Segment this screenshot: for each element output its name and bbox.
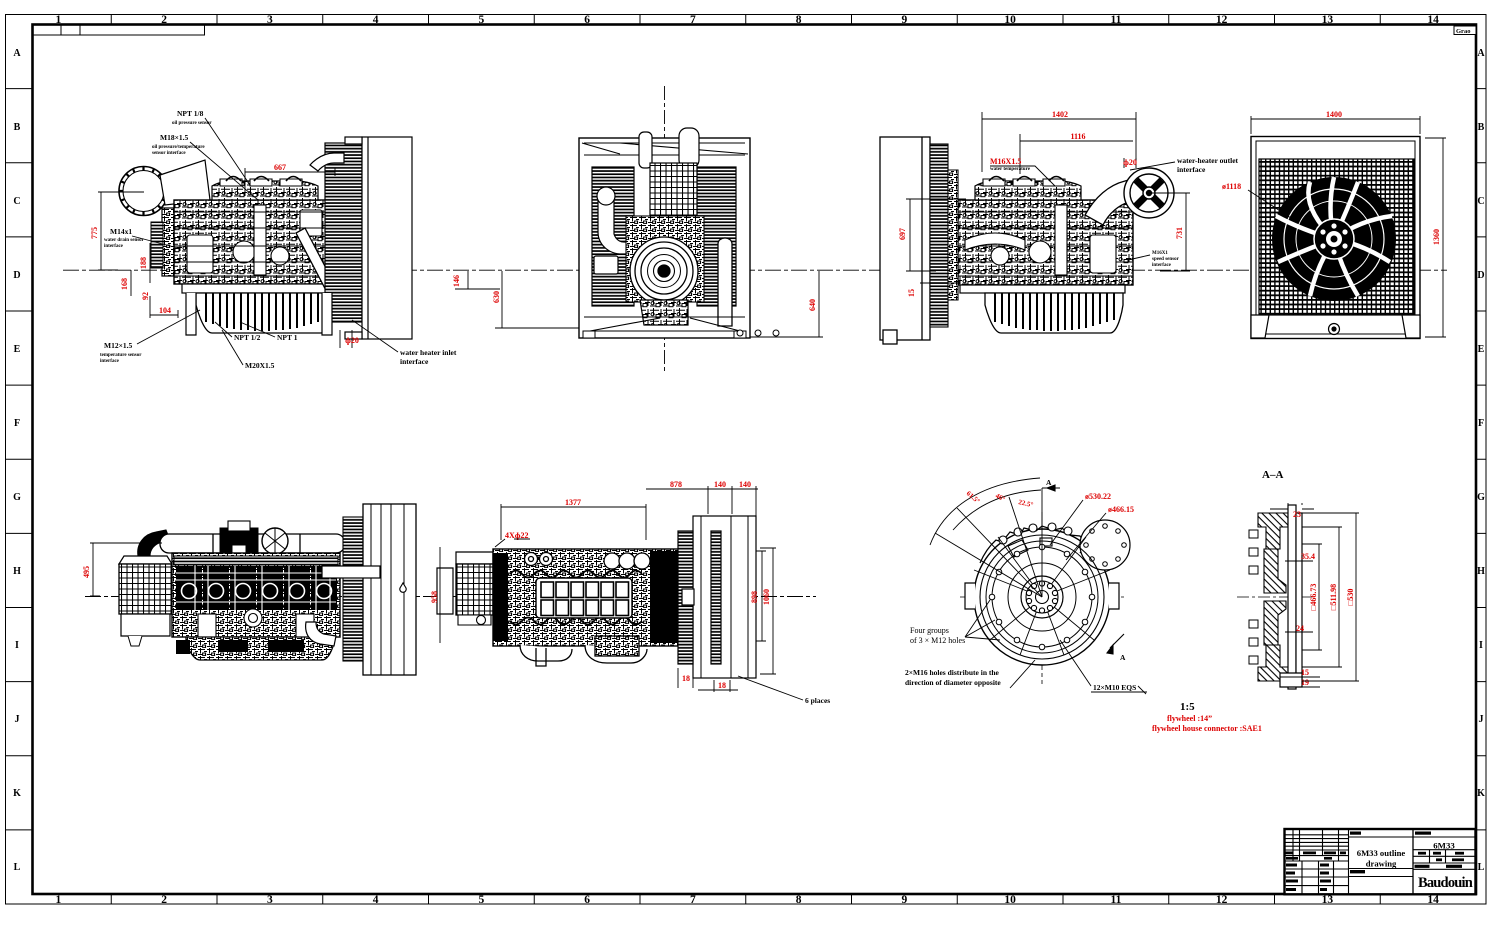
svg-text:G: G: [13, 492, 21, 503]
svg-text:temperature sensor: temperature sensor: [100, 353, 142, 358]
svg-text:6M33 outline: 6M33 outline: [1357, 848, 1406, 858]
svg-text:6M33: 6M33: [1433, 841, 1455, 851]
svg-text:1377: 1377: [565, 498, 581, 507]
svg-text:9: 9: [902, 14, 908, 26]
svg-text:7: 7: [690, 894, 696, 906]
svg-text:ɸ20: ɸ20: [1123, 158, 1137, 167]
svg-text:water temperature: water temperature: [990, 167, 1031, 172]
svg-text:731: 731: [1175, 227, 1184, 239]
svg-text:□511.98: □511.98: [1329, 584, 1338, 610]
svg-text:18: 18: [718, 681, 726, 690]
svg-text:11: 11: [1110, 14, 1121, 26]
svg-text:ɸ20: ɸ20: [345, 336, 359, 345]
svg-text:630: 630: [492, 291, 501, 303]
svg-text:□466.73: □466.73: [1309, 584, 1318, 611]
svg-text:1: 1: [56, 894, 62, 906]
svg-text:M18×1.5: M18×1.5: [160, 133, 188, 142]
svg-text:168: 168: [120, 278, 129, 290]
svg-text:10: 10: [1004, 14, 1016, 26]
svg-text:E: E: [1478, 344, 1485, 355]
svg-text:NPT 1: NPT 1: [277, 333, 298, 342]
svg-text:C: C: [13, 196, 20, 207]
svg-text:2×M16 holes distribute in the: 2×M16 holes distribute in the: [905, 668, 1000, 677]
svg-text:14: 14: [1427, 14, 1439, 26]
svg-text:A: A: [1477, 48, 1485, 59]
svg-text:13: 13: [1322, 894, 1334, 906]
svg-text:interface: interface: [1152, 263, 1172, 268]
svg-text:Four groups: Four groups: [910, 626, 949, 635]
svg-text:A: A: [1046, 478, 1052, 487]
svg-text:water drain sensor: water drain sensor: [104, 238, 145, 243]
svg-text:drawing: drawing: [1366, 859, 1397, 869]
svg-text:11: 11: [1110, 894, 1121, 906]
svg-text:6: 6: [584, 14, 590, 26]
svg-text:5: 5: [479, 14, 485, 26]
svg-text:NPT 1/2: NPT 1/2: [234, 333, 261, 342]
svg-text:775: 775: [90, 227, 99, 239]
svg-text:A–A: A–A: [1262, 469, 1283, 481]
svg-text:interface: interface: [1177, 165, 1206, 174]
svg-text:L: L: [1478, 862, 1485, 873]
svg-text:3: 3: [267, 14, 273, 26]
svg-text:640: 640: [808, 299, 817, 311]
svg-text:NPT 1/8: NPT 1/8: [177, 109, 204, 118]
svg-text:92: 92: [141, 292, 150, 300]
svg-text:I: I: [15, 640, 19, 651]
svg-text:13: 13: [1322, 14, 1334, 26]
svg-text:I: I: [1479, 640, 1483, 651]
svg-text:1360: 1360: [1432, 229, 1441, 245]
svg-text:1060: 1060: [762, 589, 771, 605]
svg-text:J: J: [1479, 714, 1484, 725]
svg-text:Baudouin: Baudouin: [1418, 875, 1473, 891]
svg-text:K: K: [13, 788, 21, 799]
svg-text:1400: 1400: [1326, 110, 1342, 119]
svg-text:6 places: 6 places: [805, 696, 830, 705]
svg-text:12×M10 EQS: 12×M10 EQS: [1093, 683, 1136, 692]
svg-text:D: D: [13, 270, 20, 281]
svg-text:8: 8: [796, 894, 802, 906]
svg-text:M12×1.5: M12×1.5: [104, 341, 132, 350]
svg-text:interface: interface: [400, 357, 429, 366]
svg-text:M16X1.5: M16X1.5: [990, 157, 1021, 166]
svg-text:H: H: [13, 566, 21, 577]
svg-text:J: J: [15, 714, 20, 725]
svg-text:5: 5: [479, 894, 485, 906]
svg-text:G: G: [1477, 492, 1485, 503]
svg-text:L: L: [14, 862, 21, 873]
svg-text:direction of diameter opposite: direction of diameter opposite: [905, 678, 1001, 687]
svg-text:B: B: [1478, 122, 1485, 133]
svg-text:Grao: Grao: [1456, 28, 1470, 35]
svg-text:4: 4: [373, 894, 379, 906]
svg-text:18: 18: [682, 674, 690, 683]
svg-text:23: 23: [1293, 510, 1301, 519]
svg-text:water heater inlet: water heater inlet: [400, 348, 457, 357]
svg-text:F: F: [1478, 418, 1484, 429]
svg-text:K: K: [1477, 788, 1485, 799]
svg-text:sensor interface: sensor interface: [152, 151, 186, 156]
svg-text:M20X1.5: M20X1.5: [245, 361, 275, 370]
svg-text:878: 878: [670, 480, 682, 489]
svg-text:14: 14: [1427, 894, 1439, 906]
svg-text:35.4: 35.4: [1301, 552, 1315, 561]
svg-text:ø530.22: ø530.22: [1085, 492, 1111, 501]
svg-text:ø1118: ø1118: [1222, 182, 1241, 191]
svg-text:2: 2: [161, 894, 167, 906]
svg-text:E: E: [14, 344, 21, 355]
svg-text:of 3 × M12 holes: of 3 × M12 holes: [910, 636, 965, 645]
svg-text:15: 15: [1301, 668, 1309, 677]
svg-text:1116: 1116: [1070, 132, 1085, 141]
svg-text:C: C: [1477, 196, 1484, 207]
svg-text:ø466.15: ø466.15: [1108, 505, 1134, 514]
svg-text:1:5: 1:5: [1180, 701, 1195, 713]
svg-text:12: 12: [1216, 14, 1228, 26]
svg-text:146: 146: [452, 275, 461, 287]
svg-text:flywheel :14”: flywheel :14”: [1167, 714, 1212, 723]
svg-text:495: 495: [82, 566, 91, 578]
svg-text:10: 10: [1004, 894, 1016, 906]
svg-text:speed sensor: speed sensor: [1152, 257, 1180, 262]
svg-text:140: 140: [739, 480, 751, 489]
svg-text:12: 12: [1216, 894, 1228, 906]
svg-text:188: 188: [139, 257, 148, 269]
svg-text:oil pressure sensor: oil pressure sensor: [172, 121, 212, 126]
svg-text:□530: □530: [1346, 589, 1355, 606]
svg-text:140: 140: [714, 480, 726, 489]
svg-text:3: 3: [267, 894, 273, 906]
svg-text:water-heater outlet: water-heater outlet: [1177, 156, 1239, 165]
svg-text:F: F: [14, 418, 20, 429]
svg-text:15: 15: [907, 289, 916, 297]
svg-text:1402: 1402: [1052, 110, 1068, 119]
svg-text:4: 4: [373, 14, 379, 26]
svg-text:24: 24: [1296, 624, 1304, 633]
svg-text:958: 958: [430, 591, 439, 603]
svg-text:697: 697: [898, 228, 907, 240]
svg-text:flywheel house connector :SAE1: flywheel house connector :SAE1: [1152, 724, 1262, 733]
svg-text:B: B: [14, 122, 21, 133]
svg-text:8: 8: [796, 14, 802, 26]
svg-text:D: D: [1477, 270, 1484, 281]
svg-text:898: 898: [750, 591, 759, 603]
svg-text:667: 667: [274, 163, 286, 172]
svg-text:M16X1: M16X1: [1152, 251, 1168, 256]
svg-text:interface: interface: [104, 244, 124, 249]
svg-text:interface: interface: [100, 359, 120, 364]
svg-text:6: 6: [584, 894, 590, 906]
svg-text:oil pressure/temperature: oil pressure/temperature: [152, 145, 205, 150]
svg-text:19: 19: [1301, 678, 1309, 687]
svg-text:A: A: [13, 48, 21, 59]
svg-text:H: H: [1477, 566, 1485, 577]
svg-text:7: 7: [690, 14, 696, 26]
svg-text:A: A: [1120, 653, 1126, 662]
svg-text:9: 9: [902, 894, 908, 906]
svg-text:104: 104: [159, 306, 171, 315]
svg-text:M14x1: M14x1: [110, 227, 132, 236]
